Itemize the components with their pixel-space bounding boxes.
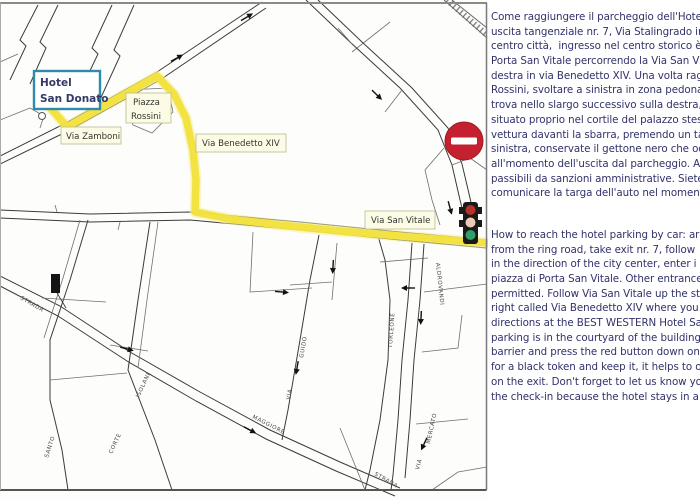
- street-label-via: VIA: [286, 388, 294, 400]
- directions-line: destra in via Benedetto XIV. Una volta r…: [491, 69, 700, 84]
- street-names: STRADA MAGGIORE STRADA SANTO CORTE ISOLA…: [19, 263, 444, 490]
- street-label-torleone: TORLEONE: [388, 313, 397, 350]
- directions-line: situato proprio nel cortile del palazzo …: [491, 113, 700, 128]
- directions-line: vettura davanti la sbarra, premendo un t…: [491, 128, 700, 143]
- directions-line: passibili da sanzioni amministrative. Si…: [491, 172, 700, 187]
- via-san-vitale-text: Via San Vitale: [371, 216, 430, 226]
- via-benedetto-xiv-text: Via Benedetto XIV: [202, 139, 280, 149]
- directions-line: directions at the BEST WESTERN Hotel Sa: [491, 316, 700, 331]
- no-entry-icon: [445, 122, 483, 160]
- street-label-strada-2: STRADA: [373, 472, 399, 490]
- via-san-vitale-label: Via San Vitale: [365, 211, 435, 229]
- city-map: STRADA MAGGIORE STRADA SANTO CORTE ISOLA…: [0, 0, 488, 500]
- english-directions-paragraph: How to reach the hotel parking by car: a…: [491, 228, 700, 404]
- street-label-santo: SANTO: [44, 435, 57, 458]
- street-label-strada: STRADA: [19, 296, 45, 314]
- directions-line: Come raggiungere il parcheggio dell'Hote…: [491, 10, 700, 25]
- directions-line: the check-in because the hotel stays in …: [491, 390, 700, 405]
- directions-line: in the direction of the city center, ent…: [491, 257, 700, 272]
- railway-hatch: [447, 0, 487, 35]
- directions-line: Porta San Vitale percorrendo la Via San …: [491, 54, 700, 69]
- street-label-via-2: VIA: [415, 458, 424, 470]
- directions-line: piazza di Porta San Vitale. Other entran…: [491, 272, 700, 287]
- street-label-corte: CORTE: [108, 433, 123, 455]
- directions-line: all'momento dell'uscita dal parcheggio. …: [491, 157, 700, 172]
- directions-line: comunicare la targa dell'auto nel moment…: [491, 186, 700, 201]
- directions-text: Come raggiungere il parcheggio dell'Hote…: [491, 10, 700, 496]
- directions-line: for a black token and keep it, it helps …: [491, 360, 700, 375]
- hotel-name-line2: San Donato: [40, 93, 109, 105]
- directions-line: barrier and press the red button down on…: [491, 345, 700, 360]
- directions-line: right called Via Benedetto XIV where you…: [491, 301, 700, 316]
- street-label-mercato: MERCATO: [426, 413, 438, 445]
- directions-line: Rossini, svoltare a sinistra in zona ped…: [491, 83, 700, 98]
- piazza-rossini-text-2: Rossini: [131, 112, 161, 122]
- street-label-maggiore: MAGGIORE: [251, 414, 285, 435]
- italian-directions-paragraph: Come raggiungere il parcheggio dell'Hote…: [491, 10, 700, 201]
- directions-line: on the exit. Don't forget to let us know…: [491, 375, 700, 390]
- street-label-isolani: ISOLANI: [135, 372, 152, 399]
- piazza-rossini-label: Piazza Rossini: [126, 93, 171, 123]
- directions-line: trova nello slargo successivo sulla dest…: [491, 98, 700, 113]
- street-label-aldrovandi: ALDROVANDI: [434, 263, 444, 306]
- directions-line: permitted. Follow Via San Vitale up the …: [491, 287, 700, 302]
- directions-line: sinistra, conservate il gettone nero che…: [491, 142, 700, 157]
- hotel-location-dot-icon: [39, 113, 46, 120]
- via-benedetto-xiv-label: Via Benedetto XIV: [196, 134, 286, 152]
- piazza-rossini-text-1: Piazza: [133, 98, 160, 108]
- via-zamboni-label: Via Zamboni: [61, 127, 121, 144]
- directions-line: from the ring road, take exit nr. 7, fol…: [491, 243, 700, 258]
- hotel-name-line1: Hotel: [40, 77, 72, 89]
- directions-line: parking is in the courtyard of the build…: [491, 331, 700, 346]
- directions-line: centro città, ingresso nel centro storic…: [491, 39, 700, 54]
- directions-line: uscita tangenziale nr. 7, Via Stalingrad…: [491, 25, 700, 40]
- via-zamboni-text: Via Zamboni: [66, 132, 120, 142]
- directions-line: How to reach the hotel parking by car: a…: [491, 228, 700, 243]
